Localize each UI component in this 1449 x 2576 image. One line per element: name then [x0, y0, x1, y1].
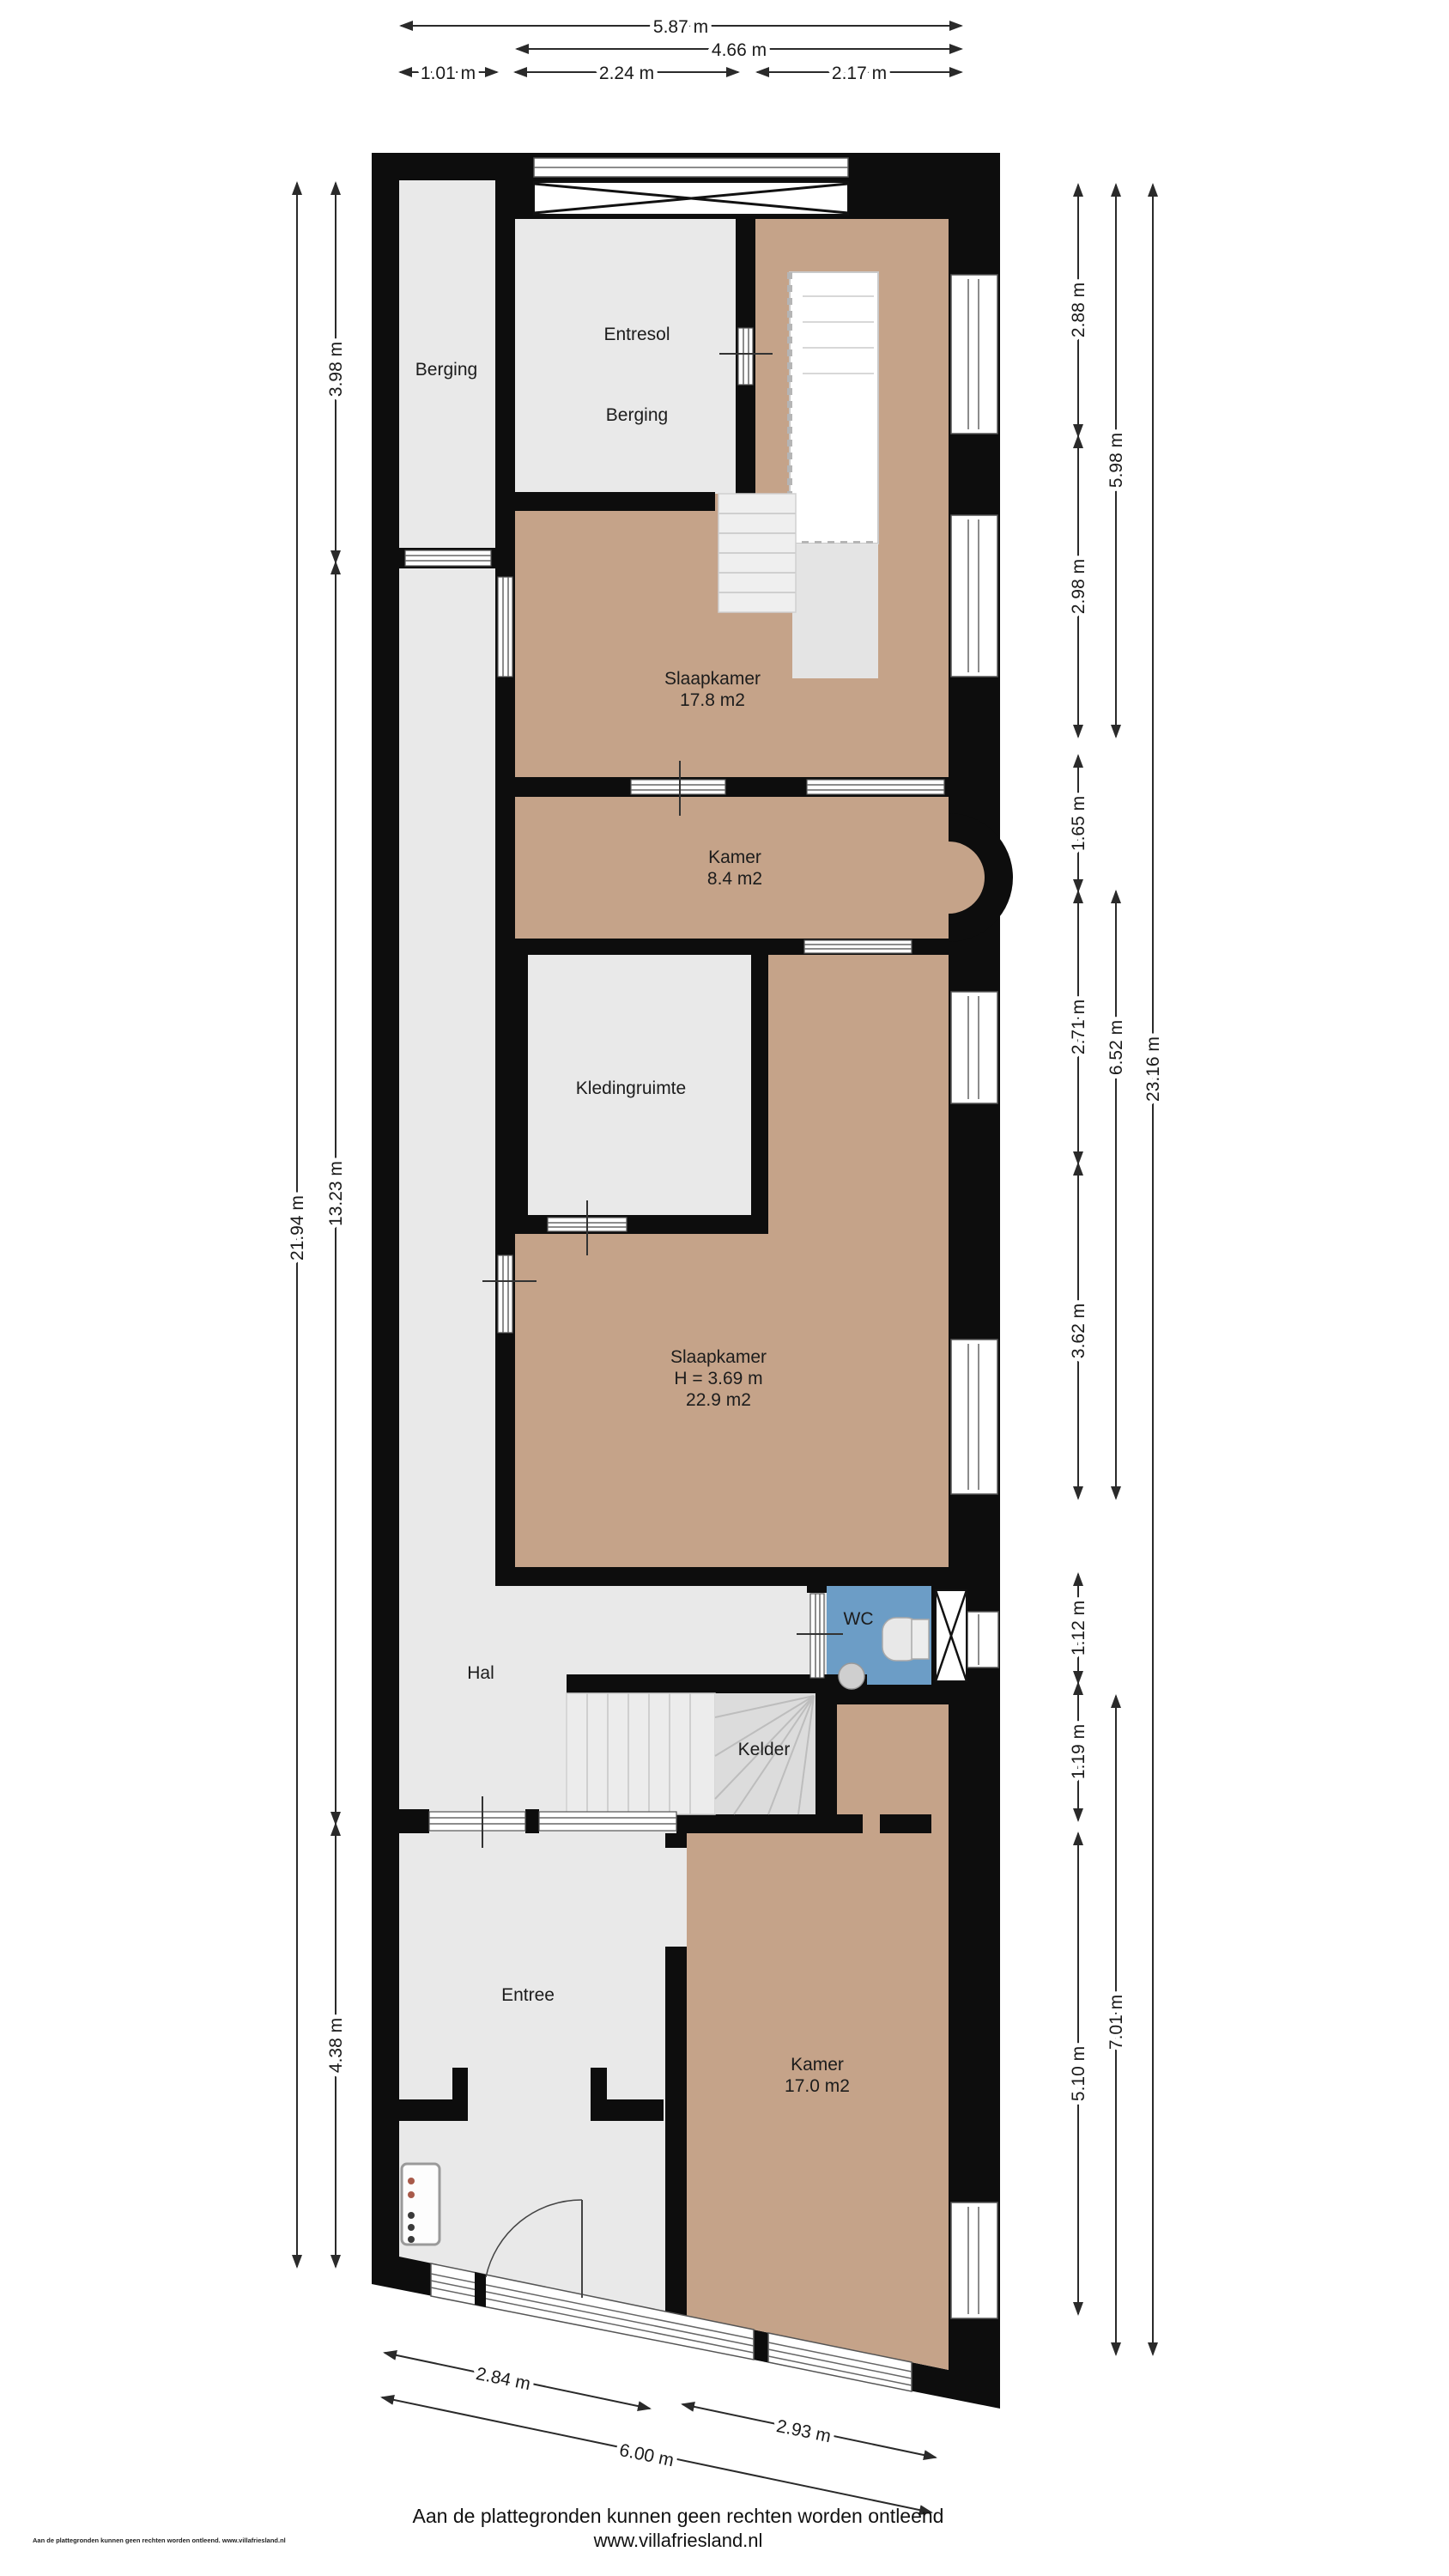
- stairs-hal: [567, 1693, 715, 1814]
- wall-kelder-right: [815, 1704, 837, 1833]
- wall-entree-top-left: [399, 1809, 429, 1833]
- door-entresol: [738, 328, 753, 385]
- label-wc: WC: [844, 1609, 874, 1629]
- window-glass: [967, 1612, 998, 1668]
- dim-right-seg7: 1.19 m: [1069, 1724, 1088, 1779]
- window-bottom-divider: [475, 2272, 486, 2307]
- vide-void: [790, 272, 878, 544]
- dim-right-inner2: 6.52 m: [1106, 1020, 1126, 1075]
- room-slaapkamer2-upper: [768, 955, 949, 1234]
- skylight-band: [534, 158, 848, 215]
- door-wc: [810, 1594, 824, 1678]
- window-right-wc: [967, 1612, 998, 1668]
- dim-right-total: 23.16 m: [1143, 1036, 1163, 1102]
- dim-right-seg8: 5.10 m: [1069, 2046, 1088, 2101]
- label-kamer1-area: 8.4 m2: [707, 869, 762, 889]
- window-slaapkamer1-hal: [498, 577, 512, 677]
- wall-kleding-left: [515, 955, 528, 1234]
- window-entree-top-a: [429, 1812, 525, 1831]
- window-entree-top-b: [539, 1812, 676, 1831]
- meter-dot-dark: [408, 2224, 415, 2231]
- label-kelder: Kelder: [738, 1740, 791, 1759]
- label-kamer2: Kamer: [791, 2055, 844, 2075]
- meter-dot-red: [408, 2178, 415, 2184]
- dim-left-seg3: 4.38 m: [326, 2018, 346, 2073]
- wall-entree-kamer2: [665, 1947, 687, 2320]
- meter-dot-dark: [408, 2236, 415, 2243]
- dim-left-seg2: 13.23 m: [326, 1161, 346, 1226]
- wall-kleding-right: [751, 955, 768, 1234]
- window-kamer1-bottom: [804, 940, 912, 953]
- dim-top-seg2: 2.24 m: [599, 64, 654, 83]
- stair-hal-run: [567, 1693, 715, 1814]
- dim-top-total: 5.87 m: [653, 17, 708, 37]
- label-slaapkamer2-height: H = 3.69 m: [674, 1369, 762, 1388]
- window-right-3: [951, 992, 997, 1103]
- dim-right-seg4: 2.71 m: [1069, 999, 1088, 1054]
- wall-slaapkamer2-bottom: [515, 1567, 949, 1586]
- window-glass: [951, 2202, 997, 2318]
- footer: Aan de plattegronden kunnen geen rechten…: [33, 2505, 943, 2551]
- dim-right-seg1: 2.88 m: [1069, 283, 1088, 337]
- wc-sink: [839, 1663, 864, 1689]
- dim-right-inner3: 7.01 m: [1106, 1995, 1126, 2050]
- bay-window: [949, 813, 1013, 942]
- dim-left-total: 21.94 m: [288, 1195, 307, 1261]
- wall-kamer2-top-stub: [880, 1814, 931, 1833]
- dim-bottom-seg1: 2.84 m: [475, 2364, 532, 2394]
- label-slaapkamer1-area: 17.8 m2: [680, 690, 745, 710]
- room-slaapkamer2: [515, 1234, 949, 1586]
- window-right-1: [951, 275, 997, 434]
- dim-right-seg5: 3.62 m: [1069, 1303, 1088, 1358]
- wall-entresol-bottom: [515, 492, 715, 511]
- label-entree: Entree: [501, 1985, 555, 2005]
- wall-entree-kamer2-stub: [665, 1833, 687, 1848]
- label-entresol-1: Entresol: [603, 325, 670, 344]
- dim-right-seg2: 2.98 m: [1069, 559, 1088, 614]
- window-glass: [951, 992, 997, 1103]
- window-slaapkamer2-hal: [498, 1255, 512, 1333]
- wall-entree-lstub2a: [591, 2099, 664, 2121]
- window-right-kamer2: [951, 2202, 997, 2318]
- dim-right-seg6: 1.12 m: [1069, 1601, 1088, 1656]
- toilet-tank: [912, 1619, 929, 1659]
- meter-cabinet: [402, 2164, 440, 2245]
- window-slk1-kamer1-b: [807, 780, 944, 794]
- footer-disclaimer: Aan de plattegronden kunnen geen rechten…: [413, 2505, 944, 2527]
- label-kamer2-area: 17.0 m2: [785, 2076, 850, 2096]
- label-kamer1: Kamer: [708, 848, 761, 867]
- dim-bottom-seg2: 2.93 m: [775, 2416, 833, 2446]
- wall-kelder-bottom: [715, 1814, 863, 1833]
- dim-left-seg1: 3.98 m: [326, 342, 346, 397]
- room-kamer2: [687, 1833, 949, 2370]
- window-glass: [951, 275, 997, 434]
- label-berging-strip: Berging: [415, 360, 477, 380]
- label-slaapkamer2-area: 22.9 m2: [686, 1390, 751, 1410]
- window-slk1-kamer1-a: [631, 780, 725, 794]
- meter-dot-red: [408, 2191, 415, 2198]
- door-berging: [405, 550, 491, 566]
- wall-entree-lstub1a: [397, 2099, 468, 2121]
- label-hal: Hal: [467, 1663, 494, 1683]
- dimensions-top: 5.87 m 4.66 m 1.01 m 2.24 m 2.17 m: [400, 17, 961, 83]
- dimensions-right: 2.88 m 2.98 m 1.65 m 2.71 m 3.62 m 1.12 …: [1069, 185, 1163, 2354]
- dim-top-seg1: 1.01 m: [421, 64, 476, 83]
- window-right-4: [951, 1340, 997, 1494]
- stair-landing: [792, 544, 878, 678]
- dimensions-left: 21.94 m 3.98 m 13.23 m 4.38 m: [288, 183, 346, 2267]
- label-slaapkamer2: Slaapkamer: [670, 1347, 767, 1367]
- window-glass: [951, 1340, 997, 1494]
- dim-right-seg3: 1.65 m: [1069, 796, 1088, 851]
- wall-hal-divider: [495, 180, 515, 1586]
- wall-entree-top-mid: [525, 1809, 539, 1833]
- wall-wc-left-top: [807, 1586, 827, 1593]
- room-kelder-side: [837, 1704, 949, 1833]
- label-slaapkamer1: Slaapkamer: [664, 669, 761, 689]
- dim-right-inner1: 5.98 m: [1106, 433, 1126, 488]
- wall-entree-lstub2b: [591, 2068, 607, 2102]
- floorplan-canvas: Berging Entresol Berging Slaapkamer 17.8…: [0, 0, 1449, 2576]
- dim-top-inner: 4.66 m: [712, 40, 767, 60]
- window-glass: [951, 515, 997, 677]
- label-kledingruimte: Kledingruimte: [576, 1078, 686, 1098]
- footer-watermark: Aan de plattegronden kunnen geen rechten…: [33, 2537, 286, 2544]
- window-right-2: [951, 515, 997, 677]
- meter-dot-dark: [408, 2212, 415, 2219]
- footer-website: www.villafriesland.nl: [593, 2530, 763, 2551]
- wall-entree-lstub1b: [452, 2068, 468, 2102]
- dim-bottom-total: 6.00 m: [618, 2440, 676, 2470]
- dim-top-seg3: 2.17 m: [832, 64, 887, 83]
- label-entresol-2: Berging: [606, 405, 668, 425]
